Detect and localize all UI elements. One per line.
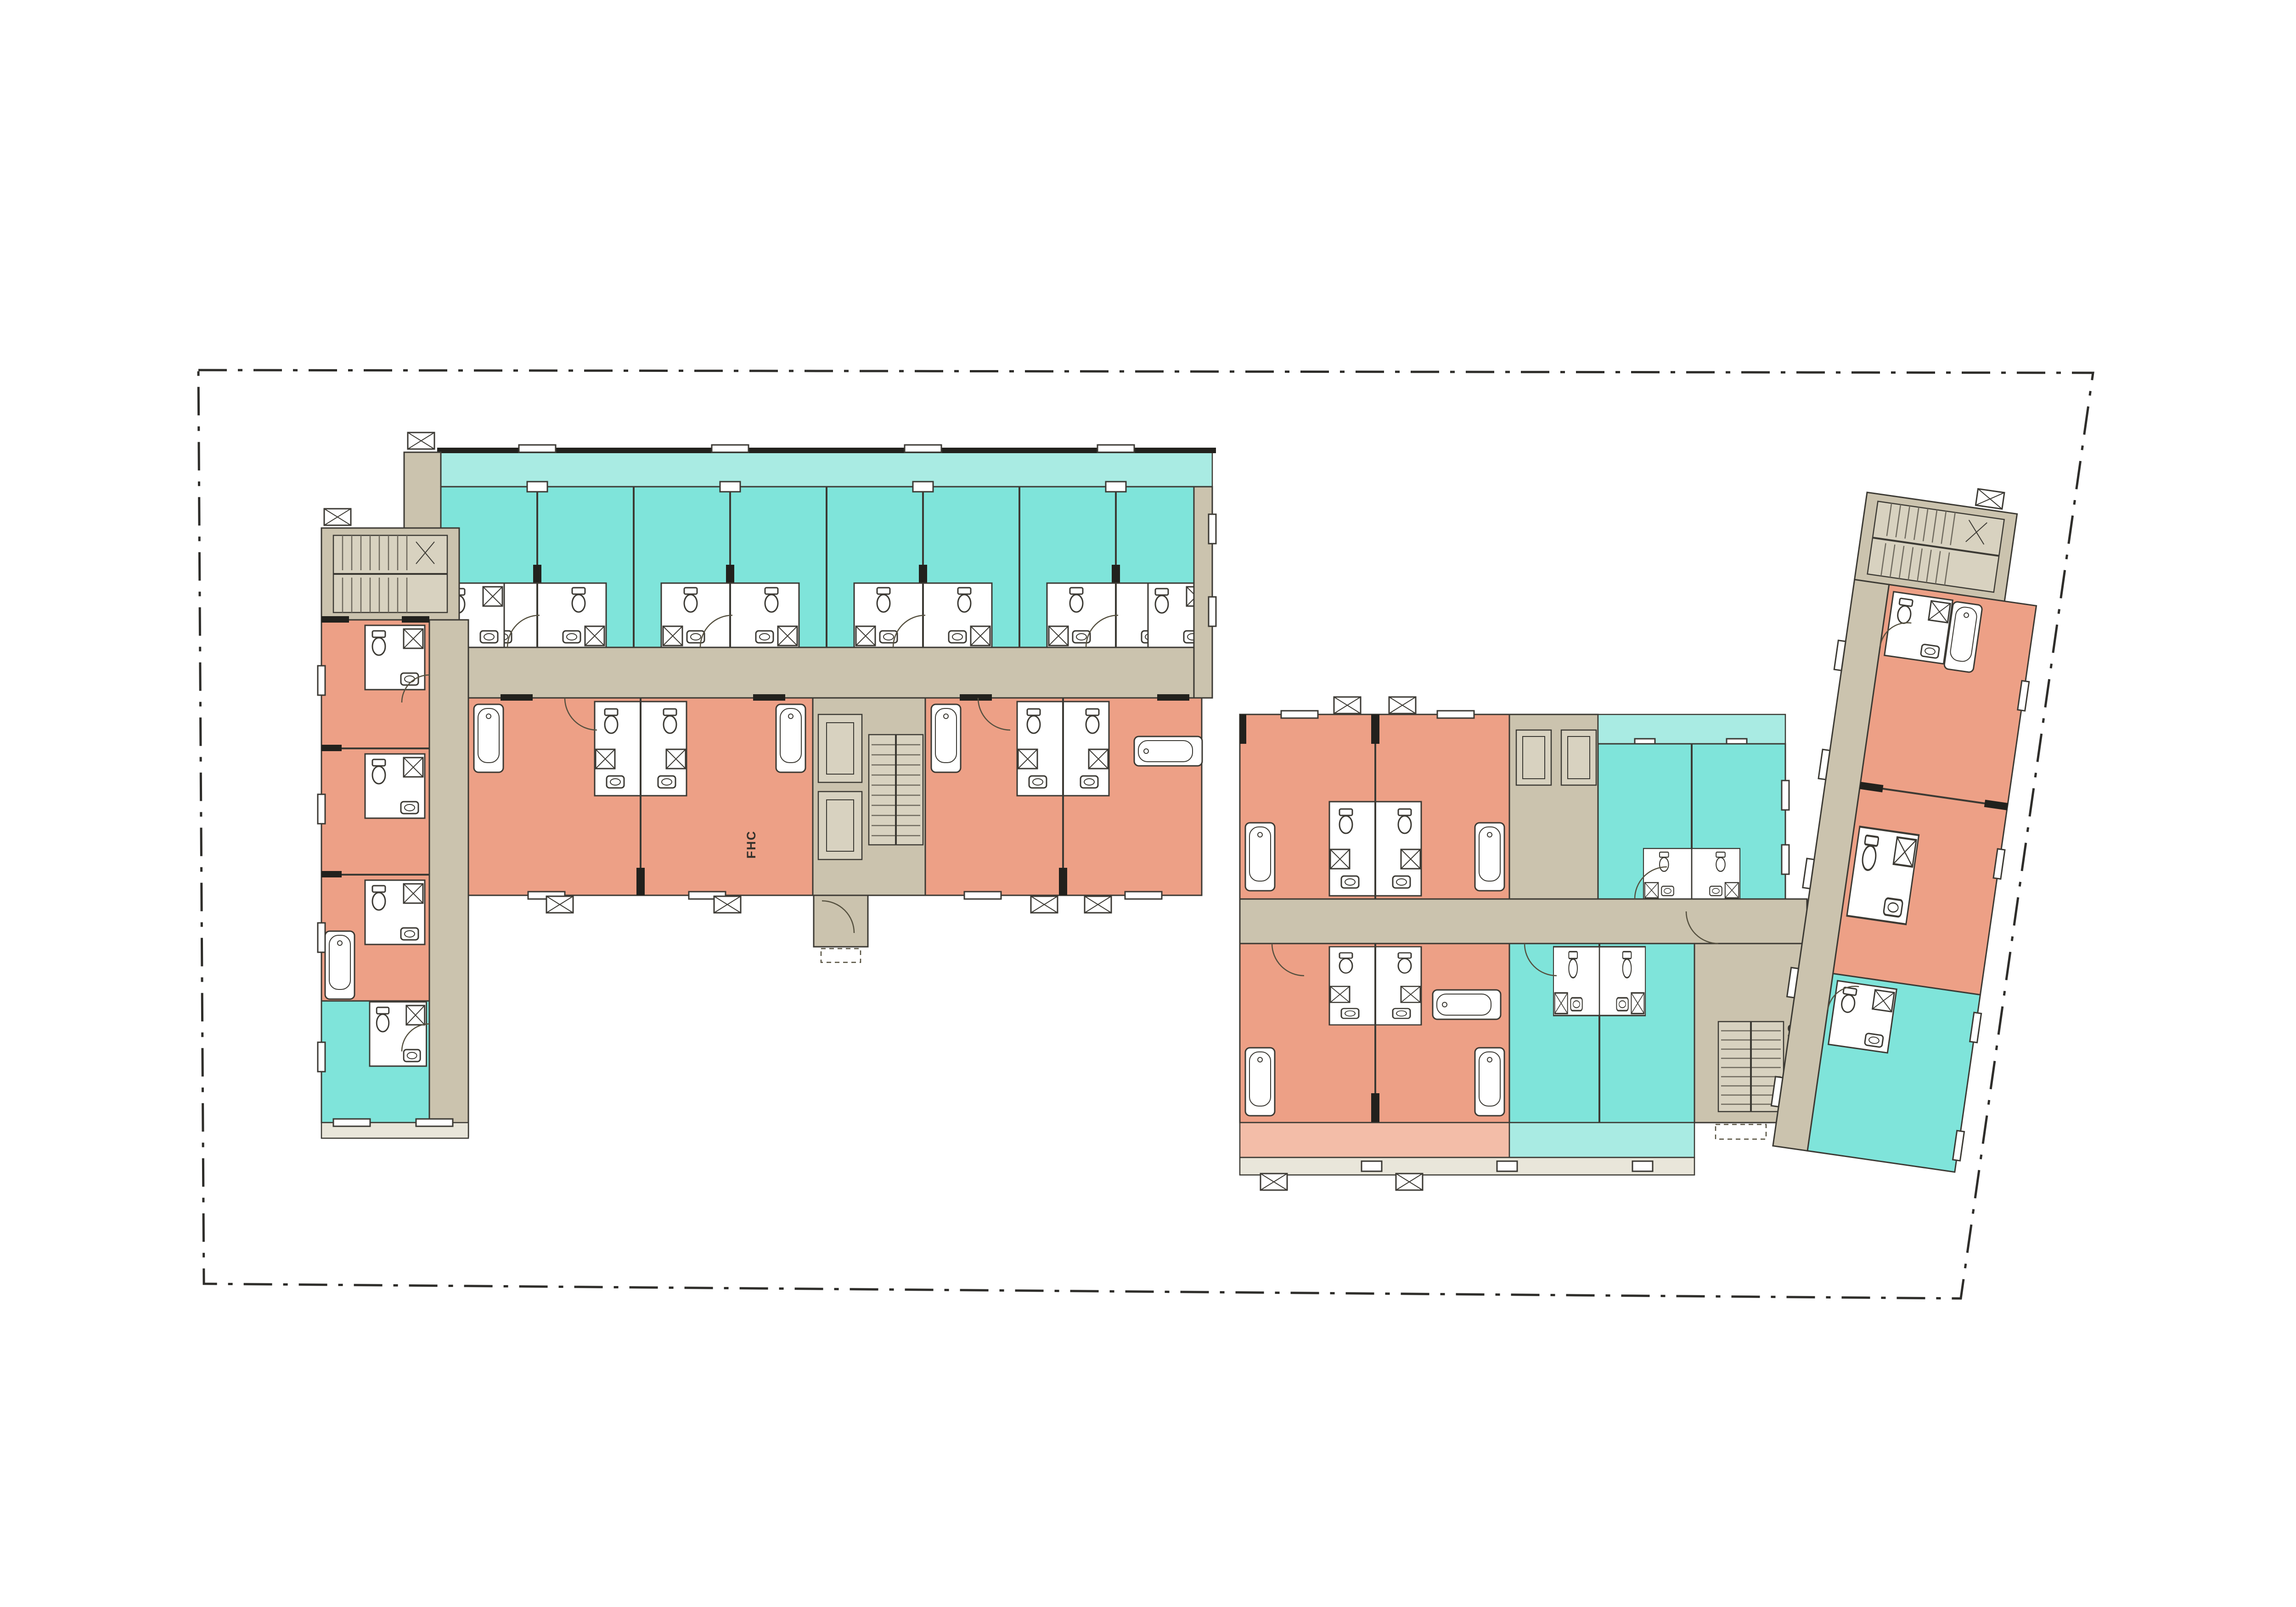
east-south-balcony-tab — [1396, 1174, 1423, 1190]
east-north-balcony-tab — [1334, 697, 1361, 714]
west-wing-corridor — [429, 620, 468, 1136]
west-group-b-bath-pods — [1017, 702, 1109, 796]
east-wing-bath-pod — [1885, 592, 1953, 664]
bathtub-fixture — [1475, 1048, 1504, 1116]
east-cyan-balconies — [1509, 1123, 1694, 1157]
east-cyan-south-bath-pods — [1553, 947, 1645, 1016]
west-north-balcony-tab — [408, 433, 434, 449]
bathtub-fixture — [1134, 736, 1202, 766]
east-south-bath-pods — [1329, 947, 1421, 1025]
east-wing-bath-pod — [1847, 826, 1919, 924]
west-elevator-2 — [818, 792, 862, 860]
fire-hose-cabinet-label-west: FHC — [744, 831, 758, 859]
east-south-balcony-tab — [1261, 1174, 1287, 1190]
west-elevator-1 — [818, 714, 862, 782]
west-entry-vestibule — [814, 895, 868, 947]
east-elevator-1 — [1516, 730, 1551, 785]
west-entry-mat — [821, 949, 861, 962]
bathtub-fixture — [776, 704, 805, 772]
building-east-wing — [1766, 472, 2055, 1172]
east-cyan-north-bath-pods — [1643, 848, 1740, 899]
east-south-deck — [1240, 1157, 1694, 1175]
east-elevator-2 — [1561, 730, 1596, 785]
east-north-balcony-tab — [1389, 697, 1416, 714]
east-salmon-balconies — [1240, 1123, 1509, 1157]
west-main-corridor — [404, 647, 1212, 698]
west-group-a-bath-pods — [595, 702, 687, 796]
east-main-corridor — [1240, 899, 1807, 944]
site-plan-drawing: FHC — [0, 0, 2296, 1607]
bathtub-fixture — [1245, 823, 1275, 891]
building-west: FHC — [318, 433, 1216, 1138]
west-wing-cyan-bath-pod — [370, 1002, 427, 1066]
floor-plan-page: FHC — [0, 0, 2296, 1607]
east-wing-stair — [1855, 473, 2020, 601]
building-east: FHC — [1240, 472, 2055, 1190]
bathtub-fixture — [1433, 990, 1501, 1019]
east-north-bath-pods — [1329, 802, 1421, 896]
bathtub-fixture — [1475, 823, 1504, 891]
west-core-stair — [869, 735, 923, 845]
bathtub-fixture — [474, 704, 503, 772]
bathtub-fixture — [1245, 1048, 1275, 1116]
east-cyan-balcony-strip — [1598, 714, 1785, 744]
bathtub-fixture — [931, 704, 961, 772]
west-north-balcony-strip — [441, 452, 1212, 487]
